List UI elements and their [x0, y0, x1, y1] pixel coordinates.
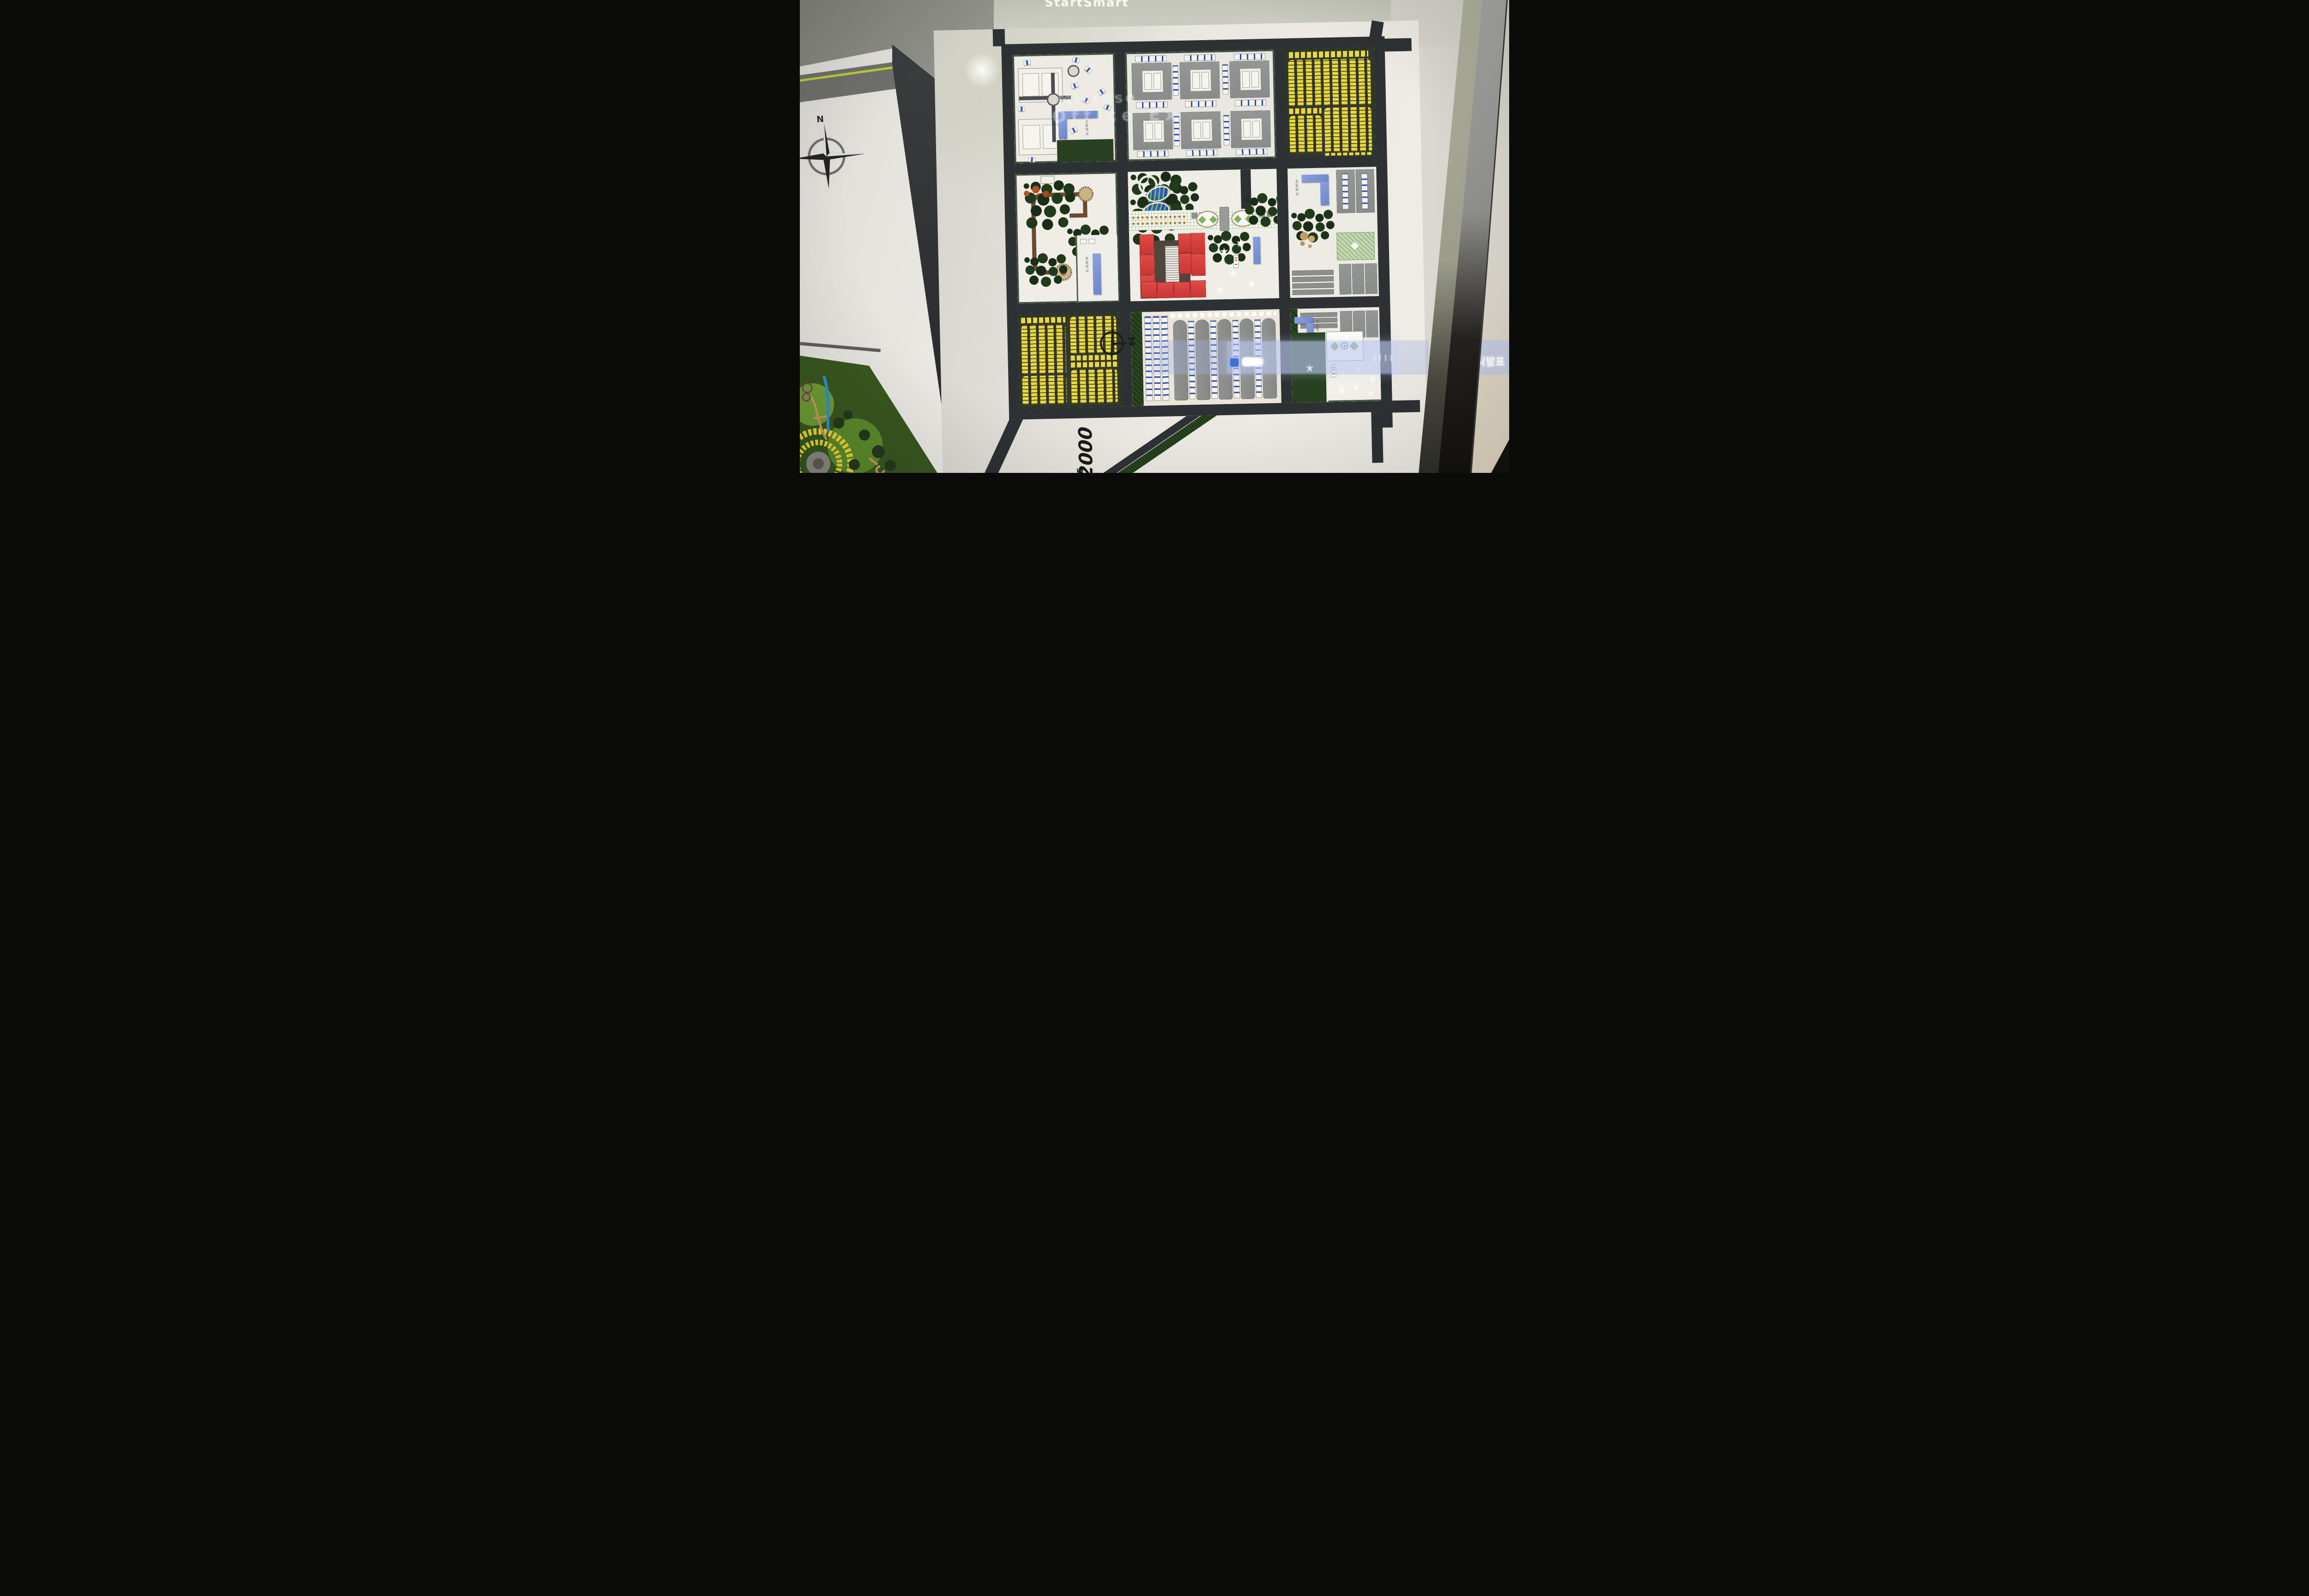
house: [1023, 60, 1030, 66]
rowhouse-strip: [1325, 152, 1372, 156]
lowrise-bar: [1136, 56, 1166, 62]
oval-plaza: [1231, 210, 1255, 227]
plan-sheet-edge: [800, 342, 881, 352]
banner-faint-ticks: [1374, 355, 1392, 361]
school-building: [1093, 254, 1101, 294]
parking-bar: [1301, 313, 1337, 317]
rowhouse-rows: [1022, 375, 1067, 405]
school-building: [1294, 317, 1313, 324]
scale-annotation: 1:2000 SCALE: [1075, 442, 1183, 473]
tall-blue-building: [1253, 236, 1260, 263]
rowhouse-strip: [1021, 317, 1065, 323]
star-sculpture: [1216, 285, 1224, 294]
axis-pillar: [1220, 207, 1229, 230]
rowhouse-strip: [1289, 108, 1321, 114]
model-board: 초등학교: [934, 20, 1428, 473]
banner-app-icon: [1230, 358, 1239, 367]
plaza-trees: [1208, 235, 1213, 241]
apartment-slab: [1339, 264, 1351, 294]
central-promenade: [1129, 208, 1278, 231]
school-building: [1301, 174, 1328, 182]
trees: [1291, 213, 1297, 218]
apartment-slab: [1352, 264, 1364, 294]
photo-stage: N: [800, 0, 1509, 473]
lowrise-bar: [1236, 149, 1267, 155]
school-label: 초등학교: [1294, 180, 1300, 204]
dense-trees: [1130, 175, 1136, 180]
landscape-plan-svg: [800, 349, 938, 473]
tan-plaza-circles: [1300, 232, 1308, 240]
side-board-header-stripe: [800, 61, 907, 103]
sports-field: [1337, 232, 1374, 260]
park-pavilion: [1041, 176, 1054, 184]
lowrise-bar: [1185, 54, 1215, 60]
oval-plaza: [1196, 211, 1219, 228]
model-block-rowhouses-ne: [1285, 48, 1376, 157]
landscape-plan: [800, 349, 938, 473]
parking-bar: [1293, 283, 1333, 288]
compass-rose-icon: N: [800, 111, 869, 204]
roundabout: [1067, 65, 1080, 78]
house: [1072, 57, 1080, 63]
apartment-slab: [1180, 62, 1220, 99]
apartment-slab: [1336, 170, 1355, 213]
star-sculpture: [1236, 239, 1245, 247]
apartment-slab: [1366, 311, 1378, 337]
house: [1071, 83, 1079, 89]
projected-ghost-line1: Microso: [1058, 90, 1138, 107]
rowhouse-rows: [1288, 58, 1371, 106]
rowhouse-rows: [1071, 369, 1118, 404]
parking-bar: [1293, 270, 1333, 275]
model-block-east: 초등학교: [1287, 167, 1379, 298]
school-lawn: [1057, 139, 1114, 163]
side-board-accent-line: [800, 65, 904, 82]
apartment-slab: [1231, 111, 1270, 148]
compass-rose-svg: [800, 111, 869, 194]
model-block-center: [1128, 169, 1279, 302]
house: [1018, 107, 1025, 112]
apartment-slab: [1230, 61, 1269, 98]
plaza-pads: [1259, 211, 1265, 217]
projected-ghost-line2: Office Ex: [1052, 105, 1181, 127]
scale-number: 1:2000: [1075, 426, 1098, 473]
house: [1084, 66, 1092, 74]
school-building-wing: [1320, 181, 1329, 205]
north-symbol-icon: z: [1100, 328, 1151, 362]
lowrise-bar: [1173, 66, 1178, 95]
road-minor: [1240, 169, 1251, 210]
banner-blurred-text: [1243, 358, 1396, 368]
projected-title: StartSmart: [1045, 0, 1192, 10]
lowrise-bar: [1185, 101, 1216, 107]
apartment-slab: [1181, 112, 1221, 149]
banner-right-icon: [1464, 355, 1474, 366]
commercial-red-block: [1139, 233, 1206, 299]
star-sculpture: [1247, 279, 1256, 288]
parking-bar: [1293, 290, 1334, 295]
model-block-park-w: 초등학교: [1015, 172, 1119, 304]
north-symbol-letter: z: [1127, 332, 1137, 349]
rowhouse-strip: [1289, 50, 1368, 58]
scale-word: SCALE: [1076, 468, 1086, 473]
school-label: 초등학교: [1084, 256, 1089, 280]
rowhouse-strip: [1071, 362, 1117, 368]
banner-korean-text: 시발표: [1476, 354, 1509, 369]
lowrise-bar: [1235, 100, 1266, 106]
apartment-slab: [1132, 63, 1172, 100]
dock-row: [1171, 311, 1277, 318]
star-sculpture: [1220, 248, 1228, 256]
tower-footprint: [1166, 246, 1179, 287]
apartment-slab: [1365, 264, 1377, 293]
parking-bar: [1293, 277, 1333, 282]
rowhouse-rows: [1324, 107, 1372, 152]
school-parcel: 초등학교: [1076, 235, 1118, 302]
lowrise-bar: [1224, 115, 1229, 145]
lowrise-bar: [1137, 151, 1168, 157]
lowrise-bar: [1186, 150, 1217, 156]
rowhouse-rows: [1021, 324, 1066, 374]
house: [1028, 157, 1035, 162]
house: [1070, 127, 1078, 133]
dense-trees: [1130, 199, 1136, 205]
apartment-slab: [1356, 169, 1374, 212]
star-sculpture: [1229, 269, 1237, 278]
lowrise-bar: [1234, 54, 1265, 60]
rowhouse-rows: [1289, 115, 1323, 153]
lowrise-bar: [1222, 65, 1228, 94]
projection-banner-core: [1227, 342, 1397, 373]
